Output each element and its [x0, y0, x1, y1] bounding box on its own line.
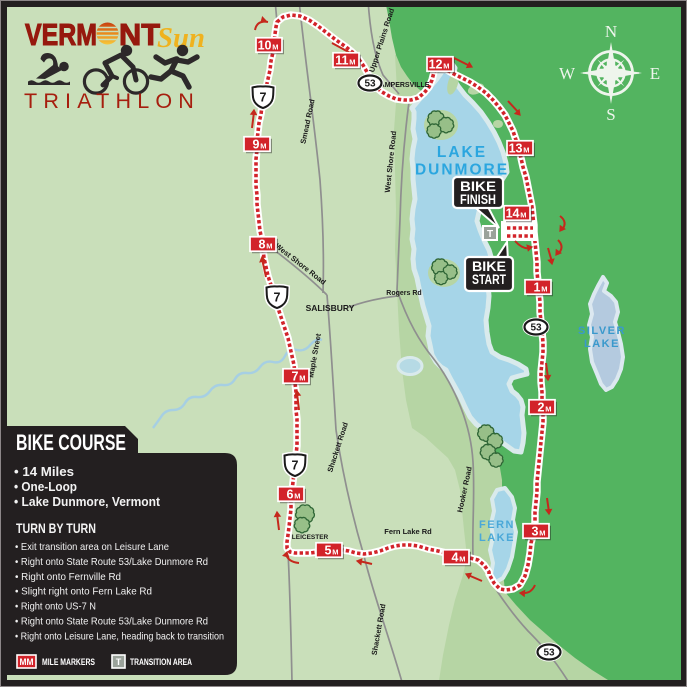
svg-text:VERM: VERM — [25, 17, 97, 52]
svg-text:M: M — [520, 210, 526, 219]
svg-text:53: 53 — [530, 323, 542, 334]
svg-text:SILVER: SILVER — [578, 325, 626, 337]
svg-text:12: 12 — [429, 58, 443, 72]
svg-text:8: 8 — [259, 238, 266, 252]
svg-text:• Lake Dunmore, Vermont: • Lake Dunmore, Vermont — [14, 494, 161, 509]
svg-text:10: 10 — [258, 39, 272, 53]
svg-text:1: 1 — [534, 281, 541, 295]
svg-text:TRIATHLON: TRIATHLON — [24, 90, 200, 113]
svg-text:S: S — [606, 105, 615, 124]
svg-text:LAKE: LAKE — [584, 338, 620, 350]
svg-text:SALISBURY: SALISBURY — [306, 303, 355, 313]
svg-text:7: 7 — [292, 370, 299, 384]
svg-text:TRANSITION AREA: TRANSITION AREA — [130, 657, 192, 668]
svg-text:M: M — [260, 141, 266, 150]
svg-text:3: 3 — [532, 525, 539, 539]
svg-text:7: 7 — [274, 291, 281, 305]
svg-text:LAKE: LAKE — [479, 532, 515, 544]
svg-text:53: 53 — [543, 648, 555, 659]
svg-text:M: M — [349, 57, 355, 66]
svg-text:T: T — [116, 657, 122, 667]
svg-text:5: 5 — [325, 544, 332, 558]
svg-text:N: N — [605, 22, 617, 41]
svg-text:M: M — [539, 528, 545, 537]
svg-text:M: M — [541, 284, 547, 293]
svg-text:• 14 Miles: • 14 Miles — [14, 464, 74, 479]
svg-text:M: M — [443, 61, 449, 70]
svg-text:• Right onto State Route 53/La: • Right onto State Route 53/Lake Dunmore… — [15, 557, 208, 568]
svg-text:• Right onto State Route 53/La: • Right onto State Route 53/Lake Dunmore… — [15, 617, 208, 628]
svg-text:M: M — [266, 241, 272, 250]
svg-text:FINISH: FINISH — [460, 192, 496, 207]
svg-text:7: 7 — [292, 459, 299, 473]
svg-text:• Slight right onto Fern Lake: • Slight right onto Fern Lake Rd — [15, 587, 152, 598]
svg-text:M: M — [545, 404, 551, 413]
svg-text:M: M — [299, 373, 305, 382]
svg-text:7: 7 — [260, 91, 267, 105]
svg-text:M: M — [523, 145, 529, 154]
svg-text:6: 6 — [287, 488, 294, 502]
svg-text:53: 53 — [364, 79, 376, 90]
svg-text:START: START — [472, 272, 507, 287]
svg-text:Rogers Rd: Rogers Rd — [386, 290, 421, 297]
svg-text:Fern Lake Rd: Fern Lake Rd — [384, 527, 432, 536]
svg-text:14: 14 — [506, 207, 520, 221]
svg-text:2: 2 — [538, 401, 545, 415]
svg-text:13: 13 — [509, 142, 523, 156]
svg-text:• One-Loop: • One-Loop — [14, 479, 77, 494]
svg-text:M: M — [459, 554, 465, 563]
svg-text:MM: MM — [20, 657, 34, 667]
svg-text:• Right onto Fernville Rd: • Right onto Fernville Rd — [15, 572, 121, 583]
svg-text:M: M — [272, 42, 278, 51]
svg-text:W: W — [559, 64, 576, 83]
svg-text:LEICESTER: LEICESTER — [292, 534, 329, 541]
svg-text:BIKE COURSE: BIKE COURSE — [16, 430, 126, 455]
svg-text:T: T — [487, 229, 493, 240]
svg-text:M: M — [294, 491, 300, 500]
svg-text:11: 11 — [335, 54, 348, 68]
svg-text:9: 9 — [253, 138, 260, 152]
svg-text:M: M — [332, 547, 338, 556]
svg-text:FERN: FERN — [479, 519, 515, 531]
svg-text:• Right onto Leisure Lane, hea: • Right onto Leisure Lane, heading back … — [15, 631, 224, 642]
svg-text:LAKE: LAKE — [437, 144, 487, 161]
svg-text:• Exit transition area on Leis: • Exit transition area on Leisure Lane — [15, 542, 169, 553]
svg-text:MILE MARKERS: MILE MARKERS — [42, 657, 95, 668]
svg-text:TURN BY TURN: TURN BY TURN — [16, 520, 96, 536]
svg-text:E: E — [650, 64, 660, 83]
svg-text:4: 4 — [452, 551, 459, 565]
svg-text:• Right onto US-7 N: • Right onto US-7 N — [15, 602, 96, 613]
